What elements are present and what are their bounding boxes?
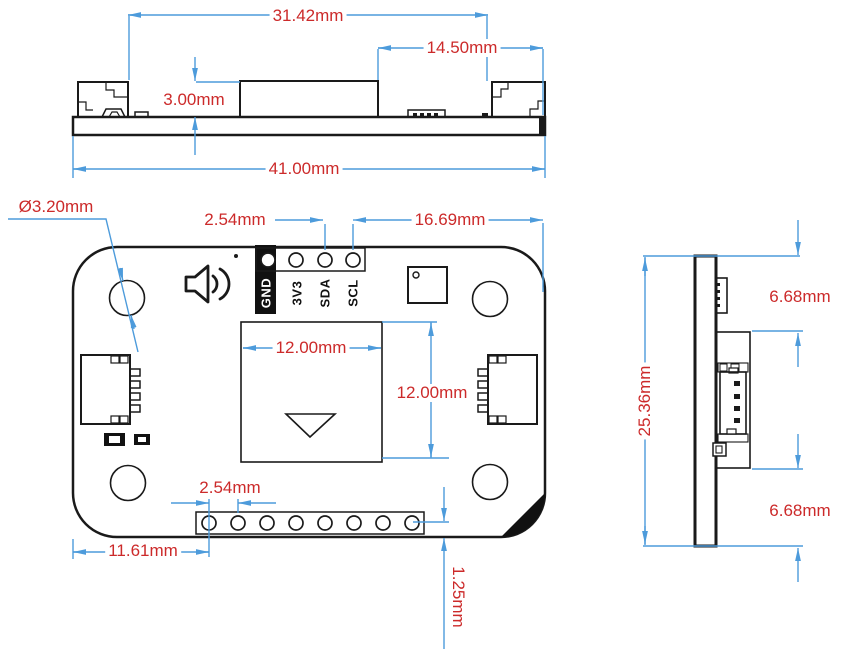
side-view-dimensions xyxy=(643,220,803,582)
fiducial-dot xyxy=(234,254,238,258)
front-pcb-view xyxy=(73,245,545,537)
dim-sensor-width: 12.00mm xyxy=(273,339,350,357)
resistor-component xyxy=(134,434,150,445)
center-component-profile xyxy=(240,81,378,117)
dim-hole-diameter: Ø3.20mm xyxy=(16,198,97,216)
dim-sensor-height: 12.00mm xyxy=(394,384,471,402)
dim-edge-to-first-pin: 11.61mm xyxy=(105,542,181,560)
led-component xyxy=(104,433,125,446)
pad-3v3 xyxy=(289,253,303,267)
dim-pin-to-edge: 16.69mm xyxy=(412,211,489,229)
dim-lower-offset: 6.68mm xyxy=(766,502,833,520)
pad-gnd xyxy=(261,253,275,267)
dim-board-height: 25.36mm xyxy=(636,363,654,440)
dim-inner-width: 31.42mm xyxy=(270,7,347,25)
dim-top-pin-pitch: 2.54mm xyxy=(201,211,268,229)
left-connector-profile xyxy=(78,82,148,117)
pad-scl xyxy=(346,253,360,267)
pad-sda xyxy=(318,253,332,267)
top-profile-view xyxy=(73,81,545,135)
dim-bottom-pin-pitch: 2.54mm xyxy=(196,479,263,497)
dimension-drawing-canvas: 31.42mm 14.50mm 3.00mm 41.00mm Ø3.20mm 2… xyxy=(0,0,850,650)
pin-label-3v3: 3V3 xyxy=(291,281,304,306)
dim-upper-offset: 6.68mm xyxy=(766,288,833,306)
pin-label-scl: SCL xyxy=(347,279,360,307)
dim-total-width: 41.00mm xyxy=(266,160,343,178)
side-top-connector xyxy=(716,278,727,313)
pcb-board-profile xyxy=(73,117,545,135)
side-profile-view xyxy=(695,256,750,546)
pcb-board-side xyxy=(695,256,716,546)
pin-label-sda: SDA xyxy=(319,279,332,308)
dim-row-to-edge: 1.25mm xyxy=(449,563,467,630)
pin-label-gnd: GND xyxy=(260,278,273,308)
dim-component-height: 3.00mm xyxy=(160,91,227,109)
dim-right-width: 14.50mm xyxy=(424,39,501,57)
side-connector-block xyxy=(713,332,750,468)
